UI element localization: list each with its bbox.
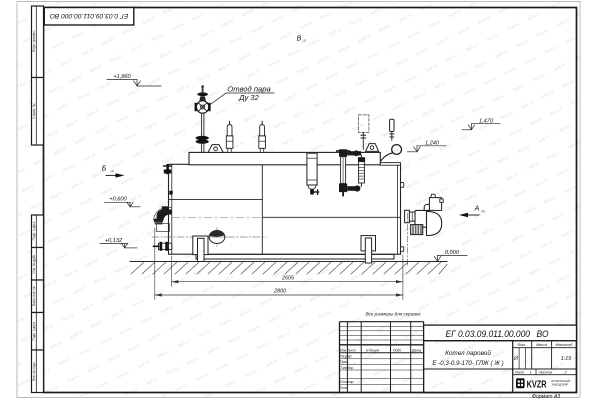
svg-text:2605: 2605 xyxy=(281,275,295,281)
svg-text:Подп. и дата: Подп. и дата xyxy=(32,322,36,341)
svg-text:1,240: 1,240 xyxy=(425,140,440,146)
svg-text:Формат А3: Формат А3 xyxy=(532,394,560,400)
svg-text:Листов: Листов xyxy=(538,371,552,375)
svg-text:Справ. №: Справ. № xyxy=(32,103,36,119)
svg-text:Разраб.: Разраб. xyxy=(340,355,352,359)
svg-text:Лист: Лист xyxy=(514,371,524,375)
svg-text:1: 1 xyxy=(530,371,532,375)
svg-text:Инв. № дубл.: Инв. № дубл. xyxy=(32,254,36,274)
svg-text:Ду 32: Ду 32 xyxy=(238,93,260,102)
svg-text:Все размеры для справок: Все размеры для справок xyxy=(365,312,421,317)
svg-text:Н.контр.: Н.контр. xyxy=(340,380,354,384)
svg-text:Масса: Масса xyxy=(536,343,547,347)
svg-text:ЗАВОД РЭР: ЗАВОД РЭР xyxy=(552,383,568,387)
svg-text:KVZR: KVZR xyxy=(527,380,547,391)
svg-text:Подп.: Подп. xyxy=(393,348,402,352)
svg-text:N докум.: N докум. xyxy=(366,348,380,352)
svg-text:Масштаб: Масштаб xyxy=(556,343,574,347)
svg-text:Б: Б xyxy=(102,166,107,173)
svg-text:Подп. и дата: Подп. и дата xyxy=(32,221,36,240)
svg-text:Взам. инв. №: Взам. инв. № xyxy=(32,286,36,306)
svg-text:Лит.: Лит. xyxy=(517,343,526,347)
svg-text:А: А xyxy=(474,206,480,213)
svg-text:0,000: 0,000 xyxy=(445,250,460,256)
svg-text:Утв.: Утв. xyxy=(340,386,348,390)
svg-text:Изм.Лист: Изм.Лист xyxy=(340,348,356,352)
svg-text:Пров.: Пров. xyxy=(340,360,349,364)
svg-text:(2): (2) xyxy=(302,39,306,43)
svg-text:Е -0,3-0,9-170- ГЛЖ ( Ж ): Е -0,3-0,9-170- ГЛЖ ( Ж ) xyxy=(432,360,503,367)
svg-text:2: 2 xyxy=(564,371,567,375)
svg-text:Котел паровой: Котел паровой xyxy=(445,349,491,357)
svg-text:ЕГ 0.03.09.011.00.000 ВО: ЕГ 0.03.09.011.00.000 ВО xyxy=(446,328,550,339)
svg-text:Перв. примен.: Перв. примен. xyxy=(32,30,36,53)
svg-text:(2): (2) xyxy=(481,209,485,213)
svg-text:2800: 2800 xyxy=(273,289,286,295)
svg-text:1:15: 1:15 xyxy=(561,356,572,362)
svg-text:Инв. № подл.: Инв. № подл. xyxy=(32,361,36,381)
svg-text:ЕГ 0.03.09.011.00.000 ВО: ЕГ 0.03.09.011.00.000 ВО xyxy=(49,12,128,19)
svg-text:(2): (2) xyxy=(110,169,114,173)
svg-text:+0,600: +0,600 xyxy=(109,197,127,203)
svg-text:И: И xyxy=(514,356,518,362)
svg-text:+0,132: +0,132 xyxy=(105,238,123,244)
svg-text:Т.контр.: Т.контр. xyxy=(340,366,354,370)
svg-text:Дата: Дата xyxy=(411,348,421,352)
svg-text:В: В xyxy=(297,36,302,43)
